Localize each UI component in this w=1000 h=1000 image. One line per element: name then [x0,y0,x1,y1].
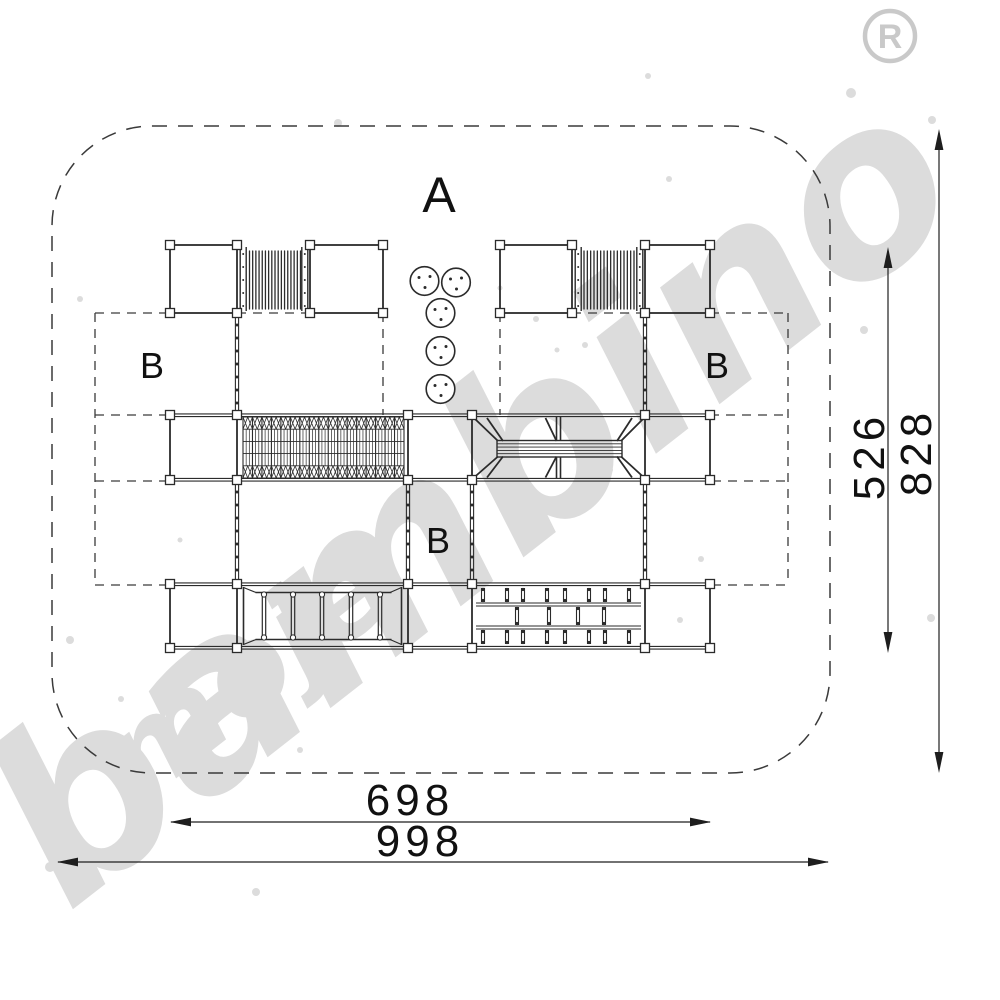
post-marker [404,411,413,420]
grid-knot [587,641,590,644]
grid-knot [627,630,630,633]
lash-dot [639,292,641,294]
grid-knot [587,588,590,591]
connector-dot [644,543,647,546]
connector-dot [236,324,239,327]
post-marker [166,476,175,485]
platform-top-left-b [310,245,383,313]
post-marker [379,241,388,250]
lash-dot [304,266,306,268]
watermark-dot [927,614,935,622]
grid-knot [515,607,518,610]
connector-dot [471,543,474,546]
stepping-post-dot [434,346,437,349]
post-marker [641,644,650,653]
registered-mark-letter: R [878,18,903,56]
lash-dot [577,253,579,255]
stepping-post [426,337,455,366]
watermark-dot [928,116,936,124]
lash-dot [304,305,306,307]
post-marker [706,644,715,653]
stepping-post-dot [449,278,452,281]
stepping-post-dot [424,286,427,289]
grid-knot [481,630,484,633]
stepping-post-dot [440,356,443,359]
grid-knot [587,599,590,602]
post-marker [166,241,175,250]
dim-text-inner-height: 526 [845,412,894,500]
lash-dot [242,292,244,294]
connector-dot [644,517,647,520]
lash-dot [242,266,244,268]
grid-knot [545,641,548,644]
post-marker [404,580,413,589]
stepping-post-dot [429,275,432,278]
rung-clamp [261,592,266,597]
arrowhead-right-icon [690,818,711,827]
post-marker [404,476,413,485]
post-marker [496,241,505,250]
connector-dot [407,517,410,520]
connector-dot [236,530,239,533]
grid-knot [521,599,524,602]
connector-dot [407,504,410,507]
connector-dot [471,556,474,559]
post-marker [468,476,477,485]
zone-a-label: A [422,167,456,223]
lash-dot [639,253,641,255]
grid-knot [576,607,579,610]
post-marker [166,644,175,653]
connector-dot [407,556,410,559]
grid-knot [481,641,484,644]
stepping-post-dot [434,384,437,387]
connector-dot [644,363,647,366]
grid-knot [603,641,606,644]
grid-knot [505,599,508,602]
rung-clamp [290,635,295,640]
post-marker [166,309,175,318]
dim-text-outer-height: 828 [892,408,941,496]
grid-knot [602,607,605,610]
rung-clamp [261,635,266,640]
post-marker [641,476,650,485]
grid-knot [563,588,566,591]
post-marker [706,241,715,250]
grid-knot [521,588,524,591]
rung-clamp [319,592,324,597]
connector-dot [236,491,239,494]
grid-knot [602,622,605,625]
grid-knot [576,622,579,625]
stepping-post-dot [445,307,448,310]
grid-knot [587,630,590,633]
connector-dot [407,491,410,494]
stepping-post-dot [455,288,458,291]
post-marker [233,241,242,250]
connector-dot [644,569,647,572]
grid-knot [521,630,524,633]
connector-dot [407,530,410,533]
arrowhead-up-icon [935,129,944,150]
connector-dot [236,556,239,559]
grid-knot [627,599,630,602]
connector-dot [644,530,647,533]
grid-knot [545,588,548,591]
rung-clamp [377,635,382,640]
connector-dot [644,376,647,379]
grid-knot [505,630,508,633]
connector-dot [644,504,647,507]
grid-knot [545,630,548,633]
lash-dot [304,292,306,294]
stepping-post-dot [434,308,437,311]
connector-dot [644,389,647,392]
post-marker [496,309,505,318]
lash-dot [242,253,244,255]
connector-dot [236,363,239,366]
stepping-post-dot [440,394,443,397]
connector-dot [471,504,474,507]
post-marker [233,411,242,420]
grid-knot [603,630,606,633]
grid-knot [505,588,508,591]
connector-dot [236,350,239,353]
zone-b-center-label: B [426,520,450,561]
grid-knot [603,599,606,602]
connector-dot [644,491,647,494]
grid-knot [481,599,484,602]
post-marker [166,411,175,420]
post-marker [706,580,715,589]
grid-knot [515,622,518,625]
platform-top-left-a [170,245,237,313]
grid-knot [545,599,548,602]
dim-text-outer-width: 998 [376,817,464,866]
stepping-post [442,268,471,297]
stepping-post [426,299,455,328]
post-marker [641,309,650,318]
watermark-dot [77,296,83,302]
lash-dot [639,279,641,281]
stepping-post-dot [440,318,443,321]
post-marker [379,309,388,318]
connector-dot [644,402,647,405]
connector-dot [471,569,474,572]
post-marker [468,411,477,420]
rung-clamp [348,635,353,640]
post-marker [568,241,577,250]
connector-dot [236,337,239,340]
connector-dot [236,389,239,392]
lash-dot [304,253,306,255]
grid-knot [481,588,484,591]
post-marker [233,580,242,589]
connector-dot [471,491,474,494]
stepping-post [410,267,439,296]
post-marker [468,580,477,589]
rung-clamp [319,635,324,640]
post-marker [568,309,577,318]
connector-dot [236,504,239,507]
grid-knot [627,588,630,591]
connector-dot [236,543,239,546]
lash-dot [639,305,641,307]
post-marker [233,309,242,318]
lash-dot [577,266,579,268]
post-marker [641,580,650,589]
post-marker [468,644,477,653]
grid-knot [521,641,524,644]
stepping-post-dot [460,277,463,280]
connector-dot [471,517,474,520]
grid-knot [563,599,566,602]
post-marker [706,309,715,318]
rung-clamp [348,592,353,597]
connector-dot [236,402,239,405]
lash-dot [577,279,579,281]
connector-dot [236,517,239,520]
stepping-post-dot [445,345,448,348]
connector-dot [644,350,647,353]
stepping-post-dot [418,276,421,279]
post-marker [233,476,242,485]
post-marker [404,644,413,653]
grid-knot [627,641,630,644]
grid-knot [547,622,550,625]
zone-b-left-label: B [140,345,164,386]
rung-clamp [290,592,295,597]
arrowhead-down-icon [935,752,944,773]
watermark-dot [677,617,683,623]
watermark-dot [178,538,183,543]
arrowhead-down-icon [884,632,893,653]
connector-dot [644,556,647,559]
rung-clamp [377,592,382,597]
lash-dot [639,266,641,268]
watermark-dot [645,73,651,79]
watermark-dot [252,888,260,896]
grid-knot [563,630,566,633]
post-marker [706,476,715,485]
post-marker [706,411,715,420]
connector-dot [471,530,474,533]
post-marker [166,580,175,589]
lash-dot [242,279,244,281]
grid-knot [603,588,606,591]
grid-knot [563,641,566,644]
connector-dot [407,543,410,546]
connector-dot [236,376,239,379]
grid-knot [505,641,508,644]
zone-b-right-label: B [705,345,729,386]
post-marker [233,644,242,653]
stepping-post-dot [445,383,448,386]
plan-drawing: moje bambino R [0,0,1000,1000]
playground-plan-canvas: moje bambino R [0,0,1000,1000]
grid-knot [547,607,550,610]
lash-dot [577,305,579,307]
watermark-dot [698,556,704,562]
post-marker [641,411,650,420]
connector-dot [236,569,239,572]
post-marker [641,241,650,250]
post-marker [306,241,315,250]
lash-dot [242,305,244,307]
stepping-post [426,375,455,404]
lash-dot [577,292,579,294]
post-marker [306,309,315,318]
connector-dot [407,569,410,572]
lash-dot [304,279,306,281]
connector-dot [644,337,647,340]
arrowhead-right-icon [808,858,829,867]
connector-dot [644,324,647,327]
